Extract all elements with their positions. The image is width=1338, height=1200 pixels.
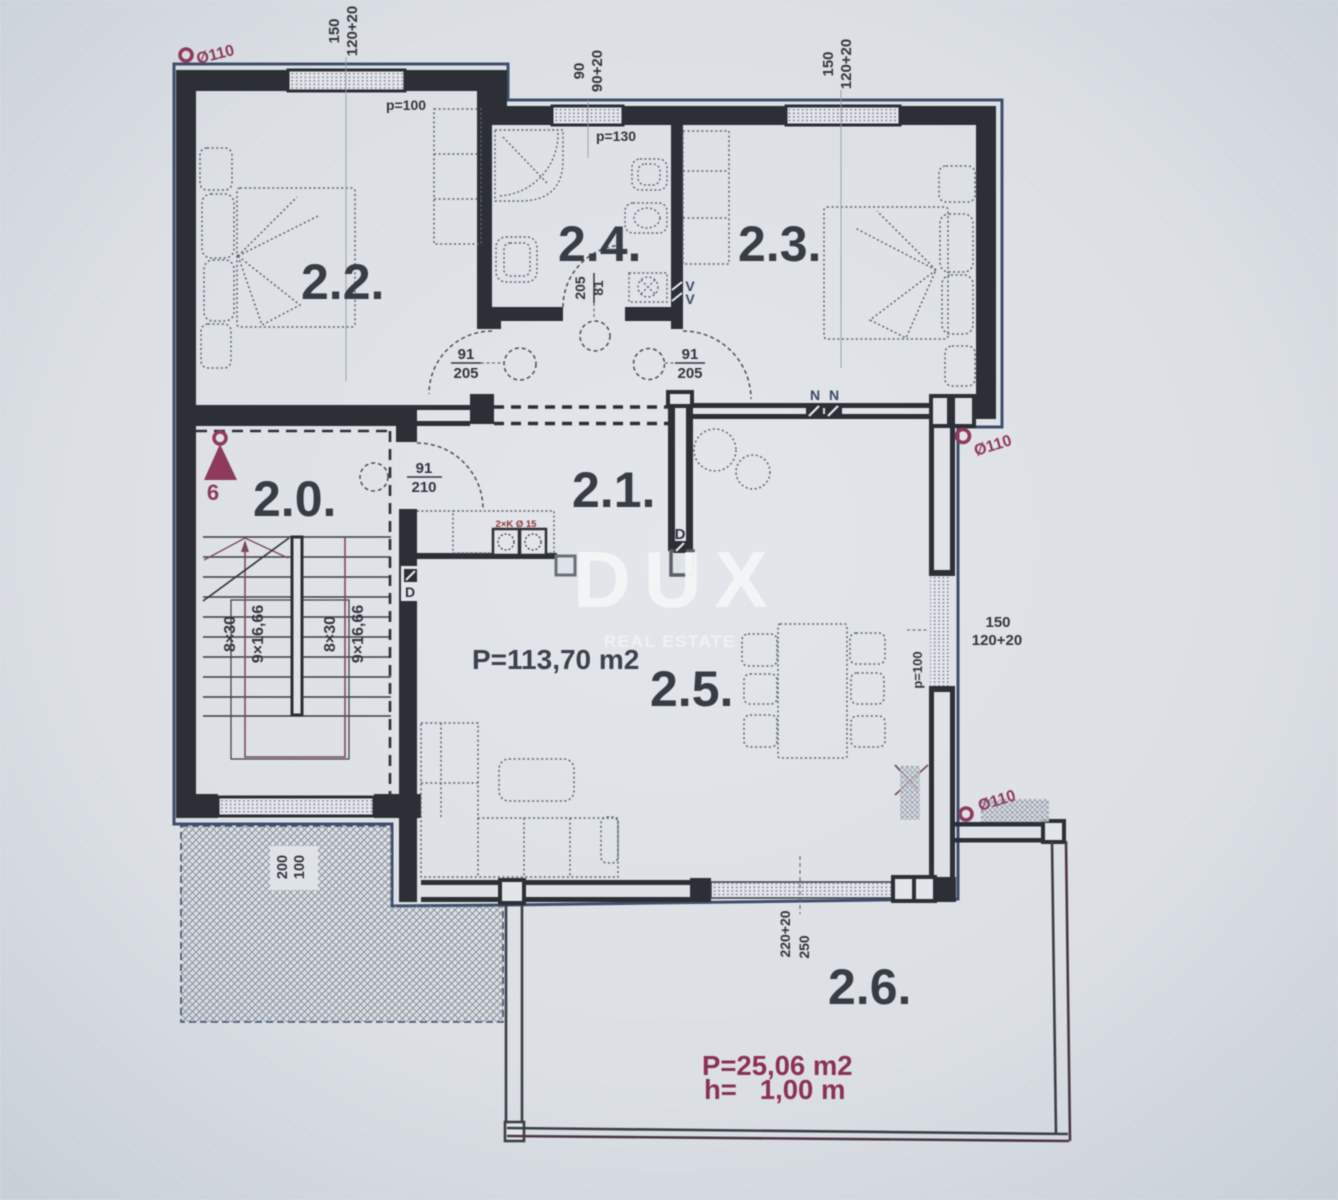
svg-text:6: 6 [207, 480, 219, 505]
svg-text:9×16,66: 9×16,66 [250, 605, 267, 663]
svg-text:8×30: 8×30 [222, 616, 239, 652]
svg-text:2.2.: 2.2. [301, 254, 384, 310]
svg-text:205: 205 [572, 276, 588, 300]
svg-text:8×30: 8×30 [322, 616, 339, 652]
svg-text:2.5.: 2.5. [650, 661, 733, 717]
svg-text:p=100: p=100 [386, 97, 426, 113]
svg-text:150: 150 [985, 614, 1010, 631]
svg-text:D: D [405, 584, 415, 600]
svg-text:9×16,66: 9×16,66 [350, 605, 367, 663]
svg-text:p=130: p=130 [596, 128, 636, 144]
svg-text:2×K Ø 15: 2×K Ø 15 [496, 519, 538, 530]
svg-text:V: V [685, 291, 695, 307]
svg-text:2.4.: 2.4. [558, 216, 641, 272]
svg-text:90+20: 90+20 [589, 50, 606, 92]
svg-text:91: 91 [416, 460, 433, 477]
svg-text:100: 100 [292, 855, 308, 879]
svg-text:2.6.: 2.6. [828, 959, 911, 1015]
svg-text:2.3.: 2.3. [738, 216, 821, 272]
svg-text:200: 200 [275, 855, 291, 879]
svg-text:P=113,70 m2: P=113,70 m2 [472, 644, 639, 675]
svg-text:2.1.: 2.1. [572, 462, 655, 518]
svg-text:205: 205 [453, 365, 478, 382]
svg-text:220+20: 220+20 [777, 910, 793, 957]
svg-text:2.0.: 2.0. [253, 471, 336, 527]
svg-text:DUX: DUX [573, 535, 781, 624]
svg-text:N: N [829, 387, 839, 403]
svg-text:91: 91 [458, 346, 475, 363]
svg-text:210: 210 [411, 479, 436, 496]
svg-text:120+20: 120+20 [838, 39, 855, 89]
svg-text:205: 205 [677, 365, 702, 382]
svg-text:N: N [810, 387, 820, 403]
svg-text:81: 81 [590, 280, 606, 296]
svg-text:120+20: 120+20 [972, 632, 1022, 649]
svg-text:p=100: p=100 [910, 651, 925, 688]
svg-text:120+20: 120+20 [344, 6, 361, 56]
svg-text:250: 250 [796, 935, 812, 959]
svg-text:90: 90 [571, 63, 588, 80]
svg-text:150: 150 [326, 18, 343, 43]
svg-text:91: 91 [682, 346, 699, 363]
svg-text:h= 1,00 m: h= 1,00 m [704, 1074, 845, 1105]
svg-text:150: 150 [820, 51, 837, 76]
